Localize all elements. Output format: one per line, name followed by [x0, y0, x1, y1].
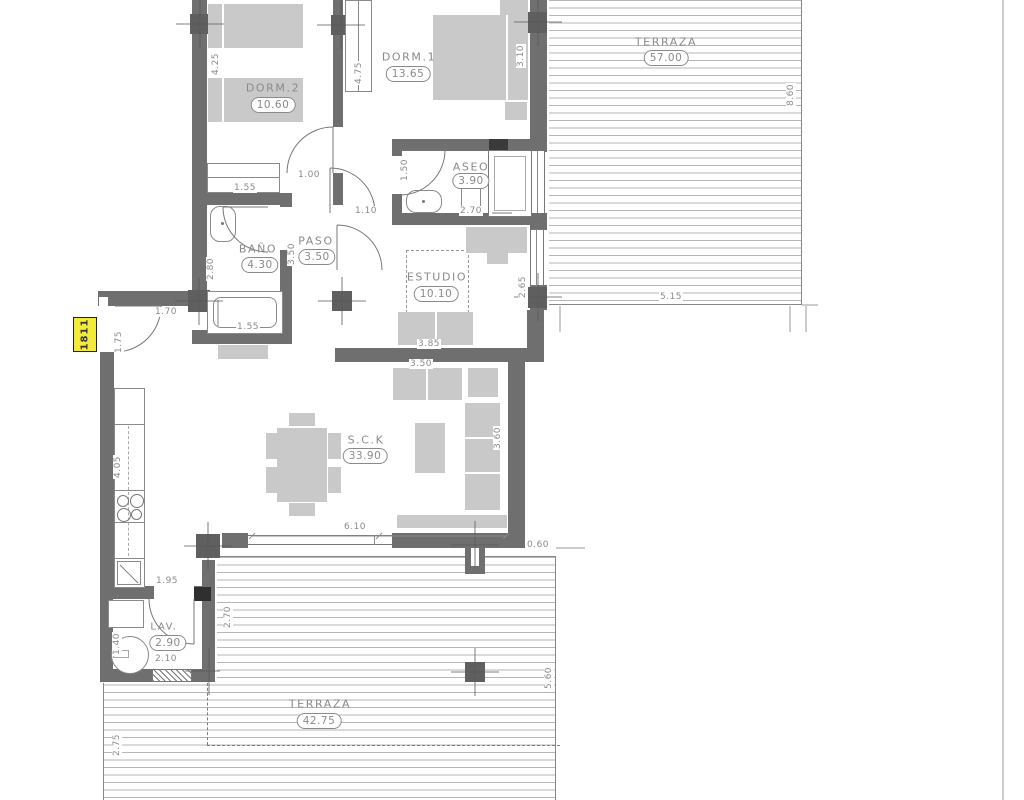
dorm2-door-swing	[287, 127, 333, 173]
room-label-sck: S.C.K	[348, 434, 385, 447]
unit-number-text: 1811	[80, 319, 91, 351]
terrace-dashed-boundary-horizontal	[207, 745, 560, 746]
dim-sck-depth: 3.60	[493, 426, 503, 450]
dining-chair	[328, 467, 341, 493]
bed-pillow-divider	[222, 4, 224, 48]
counter-divider	[114, 522, 145, 523]
wall-segment	[392, 533, 510, 548]
estudio-window	[530, 229, 544, 286]
shower-tray	[494, 156, 526, 211]
bed	[433, 15, 528, 100]
desk	[466, 227, 527, 253]
kitchen-cabinet	[218, 345, 268, 359]
stove-burner	[117, 508, 131, 522]
sofa-cushion-divider	[426, 368, 428, 400]
dim-estudio-width: 3.85	[417, 339, 441, 349]
room-area-lav: 2.90	[149, 635, 186, 651]
side-table	[468, 368, 498, 397]
dim-bano-tub: 1.55	[236, 322, 260, 332]
sofa-cushion-divider	[465, 472, 500, 474]
wall-segment	[98, 291, 199, 306]
stove-burner	[131, 509, 142, 520]
dim-dorm2-door: 1.00	[297, 170, 321, 180]
dining-chair	[328, 433, 341, 459]
room-label-paso: PASO	[298, 235, 334, 248]
terrace-step-lines	[560, 306, 806, 332]
column-marker	[196, 534, 220, 558]
laundry-vent-grille	[152, 669, 192, 682]
column-marker	[528, 12, 547, 33]
floor-plan-canvas: 1811 DORM.2 10.60 DORM.1 13.65 TERRAZA 5…	[0, 0, 1024, 800]
window-mullion	[536, 229, 537, 286]
bed-pillow-divider	[506, 15, 508, 100]
dim-terraza-bottom-depth: 5.60	[544, 666, 554, 690]
room-label-dorm1: DORM.1	[382, 51, 436, 64]
wall-segment	[392, 151, 402, 156]
wall-segment	[392, 194, 402, 215]
unit-number-tag: 1811	[73, 317, 97, 352]
column-marker	[465, 662, 485, 682]
dim-lav-width: 2.10	[154, 654, 178, 664]
column-marker	[190, 14, 210, 34]
living-room-window	[248, 535, 392, 545]
counter-divider	[114, 490, 145, 491]
sink-drain-dot	[422, 200, 425, 203]
dim-estudio-window: 2.65	[518, 275, 528, 299]
dim-dorm1-wardrobe: 4.75	[354, 61, 364, 85]
room-area-paso: 3.50	[298, 249, 335, 265]
nightstand	[505, 102, 527, 120]
dining-table	[277, 428, 327, 502]
room-area-terraza-bottom: 42.75	[297, 713, 342, 729]
dim-kitchen-pass: 1.95	[155, 576, 179, 586]
sink-drain-dot	[221, 222, 224, 225]
dim-entry-door: 1.70	[154, 307, 178, 317]
terrace-dashed-boundary-vertical	[207, 683, 208, 745]
wall-segment	[192, 193, 292, 205]
dim-dorm1-door: 1.10	[354, 206, 378, 216]
wall-segment	[192, 0, 207, 306]
dim-lav-machine: 1.40	[112, 632, 122, 656]
sofa-sectional	[465, 403, 500, 510]
coffee-table	[415, 423, 445, 473]
room-label-aseo: ASEO	[453, 161, 490, 174]
room-area-sck: 33.90	[343, 448, 388, 464]
window-mullion	[374, 535, 375, 545]
stove-burner	[130, 494, 144, 508]
wall-segment	[222, 533, 248, 548]
dim-kitchen-run: 4.05	[113, 455, 123, 479]
dim-dorm2-depth: 4.25	[211, 52, 221, 76]
wall-segment	[202, 598, 215, 682]
dim-dorm2-closet: 1.55	[233, 183, 257, 193]
room-area-terraza-top: 57.00	[644, 50, 689, 66]
dim-terraza-top-width: 5.15	[659, 292, 683, 302]
dim-entry-side: 1.75	[114, 330, 124, 354]
counter-dashed-centerline	[128, 426, 129, 556]
room-label-bano: BAÑO	[239, 243, 277, 256]
dim-aseo-door: 1.50	[400, 158, 410, 182]
room-label-lav: LAV.	[150, 622, 177, 633]
counter-divider	[114, 424, 145, 425]
column-marker	[332, 291, 352, 311]
room-area-aseo: 3.90	[452, 173, 489, 189]
dining-chair	[266, 433, 279, 459]
dim-aseo-width: 2.70	[459, 206, 483, 216]
dim-sck-sofa: 3.50	[409, 359, 433, 369]
wall-notch	[99, 297, 108, 306]
laundry-counter	[108, 600, 144, 628]
room-label-estudio: ESTUDIO	[407, 271, 467, 284]
room-area-dorm1: 13.65	[386, 66, 431, 82]
counter-divider	[114, 558, 145, 559]
room-label-terraza-top: TERRAZA	[635, 36, 697, 49]
drain-protrusion-inner	[471, 548, 479, 566]
room-area-dorm2: 10.60	[251, 97, 296, 113]
tv-sideboard	[397, 515, 507, 528]
stove-burner	[117, 495, 129, 507]
wall-segment	[530, 213, 547, 230]
dim-paso-length: 3.50	[287, 242, 297, 266]
dim-terraza-bottom-left: 2.75	[112, 733, 122, 757]
hall-door-swing	[337, 225, 382, 270]
room-area-estudio: 10.10	[414, 286, 459, 302]
kitchen-sink	[117, 561, 141, 585]
wall-segment	[280, 193, 292, 207]
room-label-dorm2: DORM.2	[246, 82, 300, 95]
dining-chair	[289, 503, 315, 516]
dim-bano-depth: 2.80	[206, 257, 216, 281]
bed-pillow-divider	[222, 78, 224, 122]
dim-overhang: 0.60	[526, 540, 550, 550]
dim-terraza-top-depth: 8.60	[786, 83, 796, 107]
wall-segment	[100, 352, 114, 592]
desk-chair	[487, 253, 508, 264]
dim-dorm1-width: 3.10	[516, 44, 526, 68]
room-label-terraza-bottom: TERRAZA	[289, 698, 351, 711]
wall-segment	[202, 560, 215, 588]
column-marker	[528, 287, 547, 308]
wall-segment	[527, 310, 544, 362]
water-heater-box	[194, 587, 211, 601]
room-area-bano: 4.30	[241, 257, 278, 273]
aseo-window	[531, 151, 545, 213]
dim-sck-window: 6.10	[343, 522, 367, 532]
wall-segment	[333, 173, 343, 205]
dining-chair	[289, 413, 315, 426]
dim-lav-side: 2.70	[223, 605, 233, 629]
wall-segment	[508, 362, 525, 548]
dining-chair	[266, 467, 279, 493]
window-mullion	[537, 151, 538, 213]
closet-sliding-door-line	[207, 177, 280, 178]
